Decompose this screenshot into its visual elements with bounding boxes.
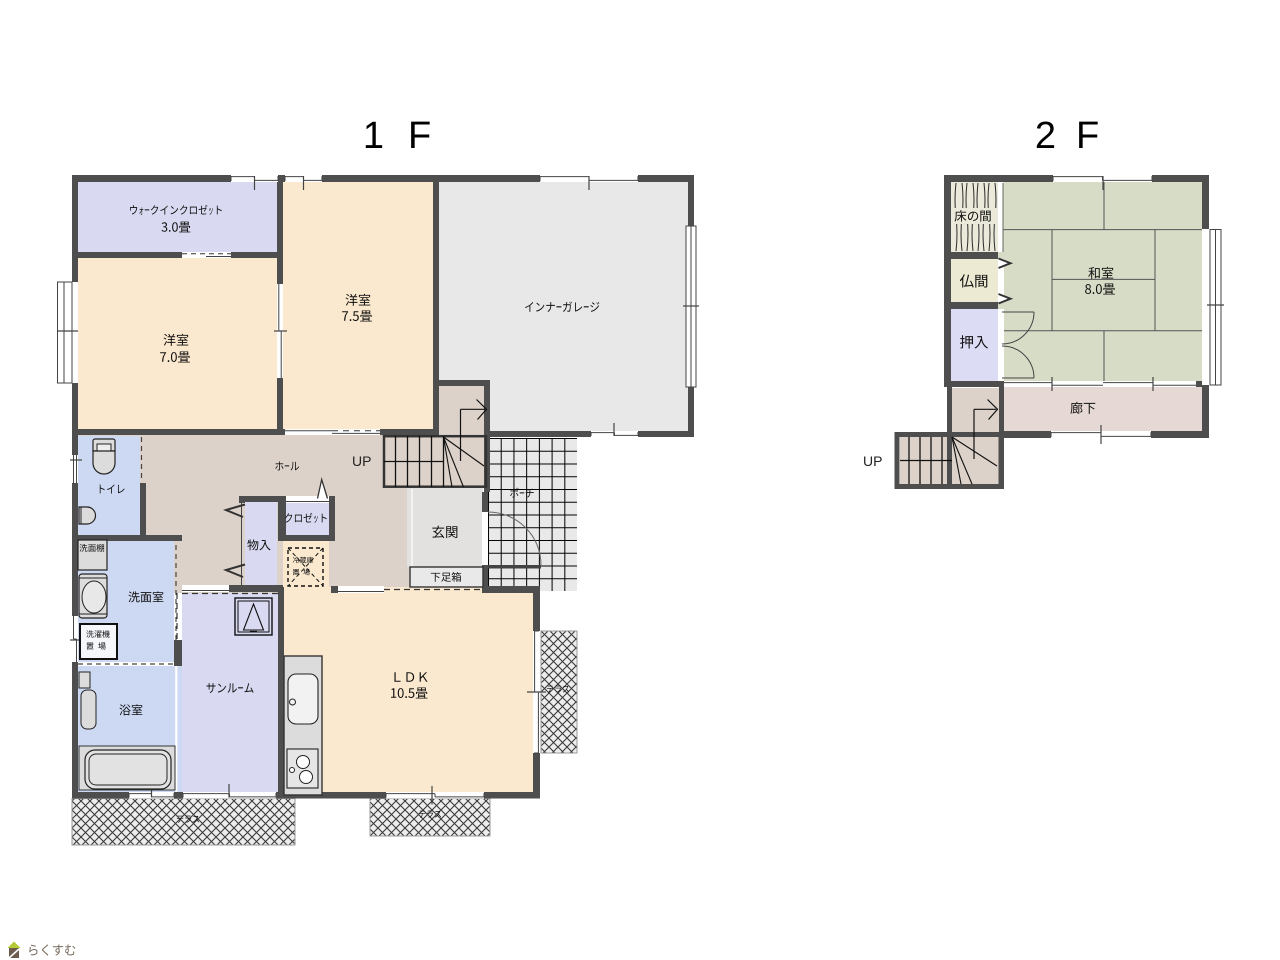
svg-text:1: 1 — [363, 115, 384, 157]
svg-text:UP: UP — [352, 453, 371, 469]
svg-text:F: F — [1076, 115, 1099, 157]
svg-text:UP: UP — [863, 453, 882, 469]
svg-text:2: 2 — [1035, 115, 1056, 157]
svg-text:F: F — [408, 115, 431, 157]
